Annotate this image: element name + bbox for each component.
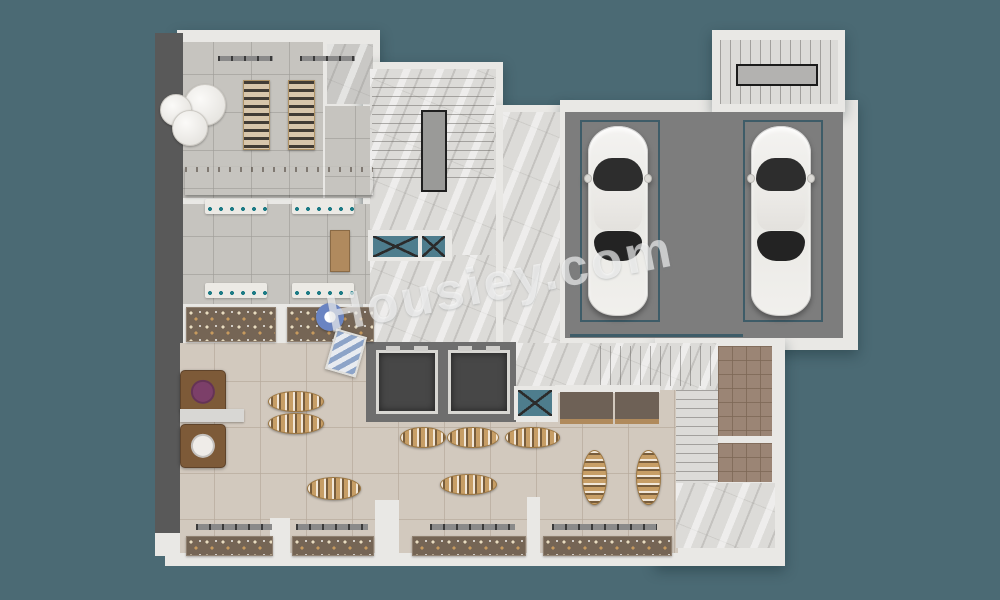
table-centerpiece [191,380,215,404]
car-rear-window [594,231,642,261]
oval-display-table-4 [447,427,499,448]
vent-shaft-2 [422,236,445,257]
storefront-rail-2 [296,524,368,530]
hanging-rail-1 [218,56,273,61]
storefront-rail-1 [196,524,272,530]
car-1 [588,126,648,316]
garage-edge-line [570,334,743,337]
oval-display-table-8 [582,450,607,505]
stairwell-void [421,110,447,192]
wall-shelf-1 [205,199,267,214]
storefront-display-2 [292,536,374,556]
storefront-display-1 [186,536,273,556]
storefront-display-4 [543,536,672,556]
car-roof [757,191,805,231]
display-case-1 [186,307,276,342]
wall-shelf-2 [292,199,354,214]
floor-plan: Housiey.com [0,0,1000,600]
entry-steps [600,346,718,386]
storefront-pier-1 [270,518,290,556]
corridor-right-of-stairs [503,112,560,343]
storefront-rail-4 [552,524,657,530]
oval-display-table-9 [636,450,661,505]
stairwell-landing-rect [736,64,818,86]
restroom-1-floor [718,346,772,436]
checkout-counter [185,167,373,195]
hanging-rail-2 [300,56,355,61]
car-windshield [756,158,806,190]
car-mirror-left [747,174,755,184]
oval-display-table-7 [307,477,361,500]
elevator-2 [448,350,510,414]
storage-desk [330,230,350,272]
car-rear-window [757,231,805,261]
service-stairs [676,390,718,483]
storefront-pier-2 [375,500,399,554]
wall-shelf-4 [292,283,354,298]
flower-display [316,303,344,331]
oval-display-table-6 [440,474,497,495]
shoe-display-rack-1 [243,80,270,150]
square-display-table-2 [180,424,226,468]
corridor-below-stairs [370,255,496,343]
corridor-bottom-right [676,483,775,548]
fitting-room-1 [560,392,613,424]
wall-shelf-3 [205,283,267,298]
vent-shaft-1 [373,236,418,257]
elevator-lobby [366,342,516,422]
square-display-table-1 [180,370,226,414]
car-mirror-left [584,174,592,184]
storefront-pier-3 [527,497,540,554]
oval-display-table-2 [268,413,324,434]
shoe-display-rack-2 [288,80,315,150]
storefront-display-3 [412,536,526,556]
car-windshield [593,158,643,190]
oval-display-table-3 [400,427,446,448]
car-2 [751,126,811,316]
storefront-rail-3 [430,524,515,530]
vent-shaft-3 [518,390,552,416]
store-back-room-floor [327,44,373,104]
elevator-1 [376,350,438,414]
fitting-room-2 [615,392,659,424]
round-display-table-3 [172,110,208,146]
shelf-divider [180,409,244,422]
oval-display-table-5 [505,427,560,448]
table-centerpiece [191,434,215,458]
car-roof [594,191,642,231]
restroom-2-floor [718,443,772,482]
oval-display-table-1 [268,391,324,412]
